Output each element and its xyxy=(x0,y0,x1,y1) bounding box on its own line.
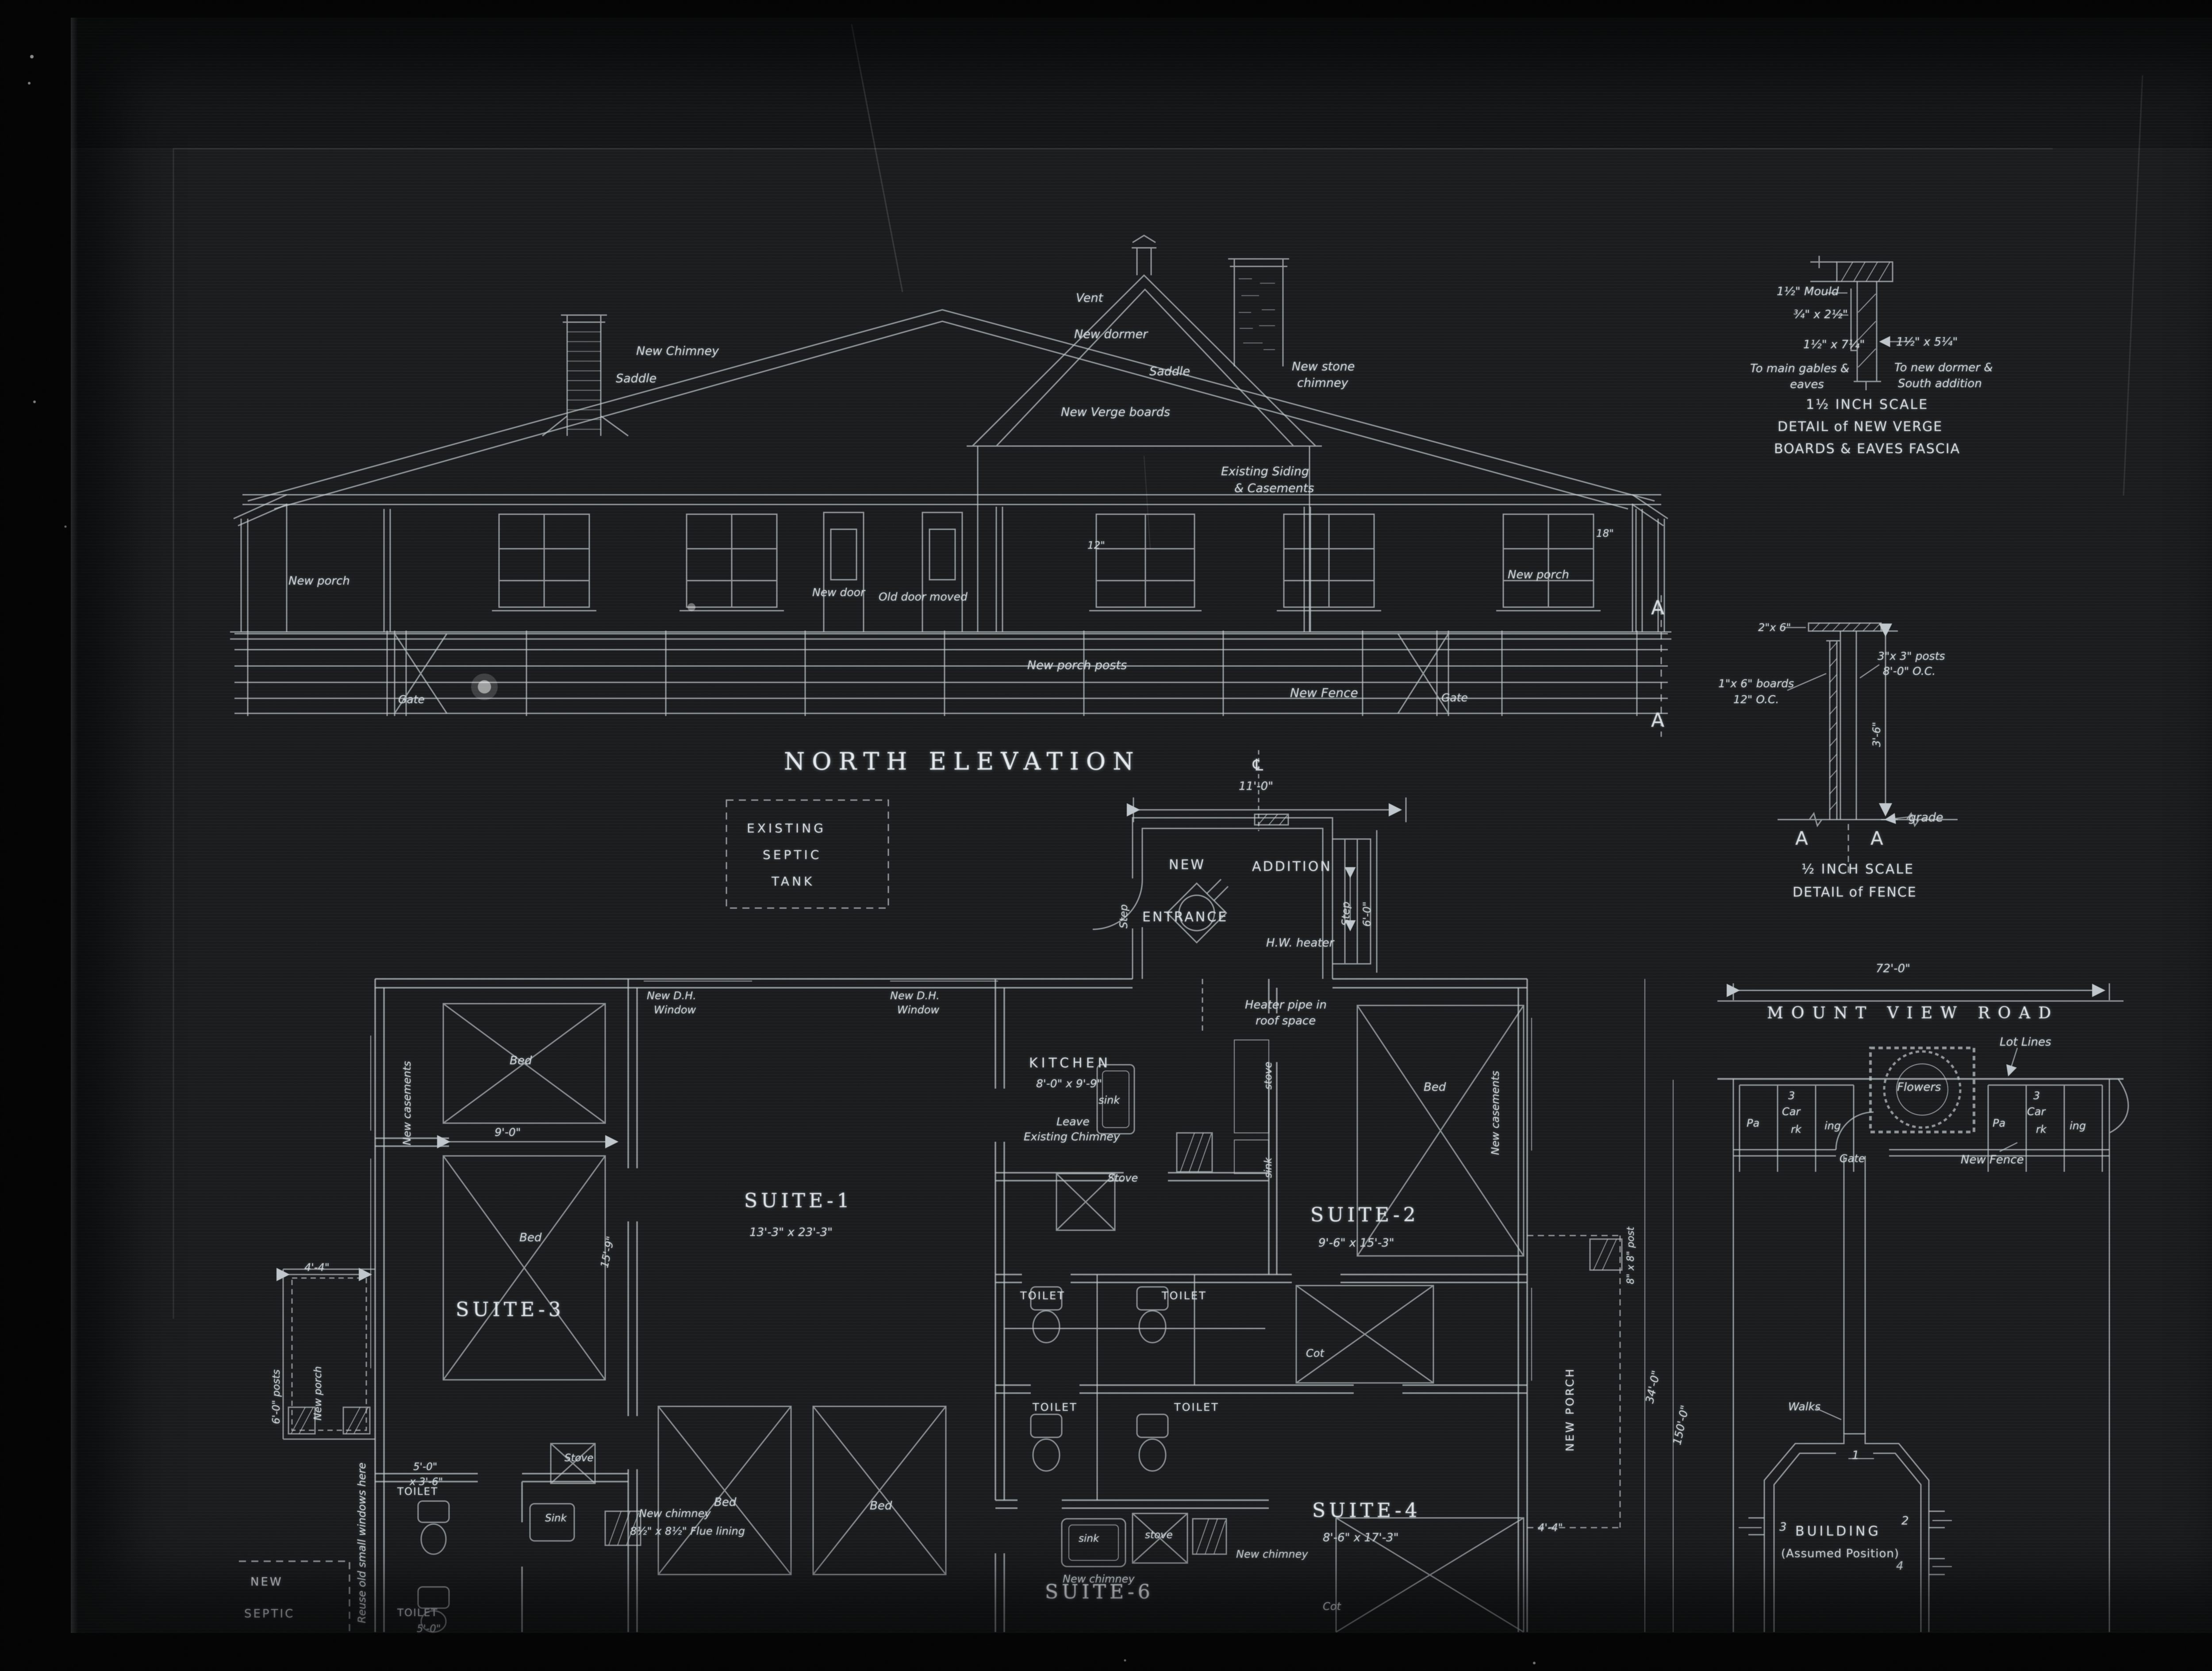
vignette-overlay xyxy=(71,18,2212,1633)
microfilm-frame: VentNew dormerNew ChimneySaddleSaddleNew… xyxy=(0,0,2212,1671)
